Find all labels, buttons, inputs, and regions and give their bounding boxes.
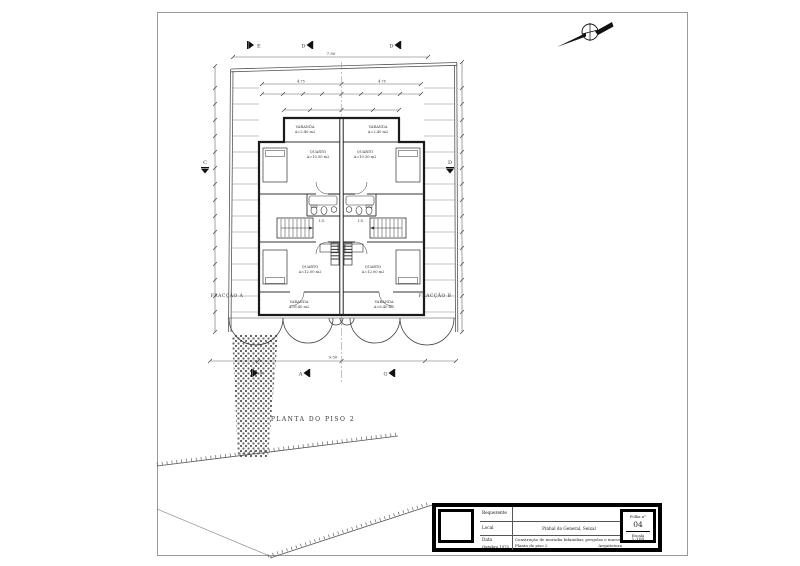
room-label-varanda-a: VARANDA <box>289 300 309 304</box>
project-description: Construção de moradia bifamiliar, pergol… <box>515 538 621 542</box>
data-value: Outubro 1975 <box>482 545 509 549</box>
room-label-varanda-top-a: VARANDA <box>295 125 315 129</box>
driveway-hatch <box>232 335 278 457</box>
fraction-a-label: FRACÇÃO A <box>211 291 244 299</box>
data-label: Data <box>482 538 492 542</box>
room-label-quarto2-a: QUARTO <box>302 265 318 269</box>
dim-top-overall: 7.50 <box>327 51 336 56</box>
section-marker-left: C <box>203 160 207 166</box>
svg-text:A=12.00 m2: A=12.00 m2 <box>298 270 322 274</box>
svg-text:A=12.00 m2: A=12.00 m2 <box>361 270 385 274</box>
room-label-quarto1-a: QUARTO <box>310 150 326 154</box>
svg-text:A=6.40 m2: A=6.40 m2 <box>288 305 309 309</box>
dim-top-right-half: 4.75 <box>378 80 386 84</box>
plan-title: PLANTA DO PISO 2 <box>271 416 355 423</box>
room-label-is-a: I.S. <box>319 219 325 223</box>
dim-bottom-overall: 9.50 <box>329 355 338 360</box>
section-marker-g: G <box>384 372 388 378</box>
room-label-quarto2-b: QUARTO <box>365 265 381 269</box>
discipline-label: Arquitetura <box>598 544 622 548</box>
dim-top-left-half: 4.75 <box>297 80 305 84</box>
local-value: Pinhal do General, Seixal <box>512 527 626 531</box>
title-block-table: Requerente Local Pinhal do General, Seix… <box>480 507 626 548</box>
local-label: Local <box>482 526 493 530</box>
room-label-quarto1-b: QUARTO <box>357 150 373 154</box>
room-label-varanda-b: VARANDA <box>374 300 394 304</box>
terrace-lines-right <box>424 88 456 312</box>
drawing-sheet: 7.50 4.75 4.75 9.50 <box>0 0 800 566</box>
north-arrow-icon <box>557 22 614 47</box>
folha-number: 04 <box>623 520 653 529</box>
svg-text:A=2.40 m2: A=2.40 m2 <box>367 130 388 134</box>
svg-text:A=10.50 m2: A=10.50 m2 <box>353 155 377 159</box>
sheet-description: Planta do piso 2 <box>515 544 548 548</box>
requerente-label: Requerente <box>482 511 507 515</box>
section-marker-right: D <box>448 160 452 166</box>
building-outline <box>259 118 424 315</box>
folha-label: Folha n° <box>623 514 653 519</box>
svg-text:A=6.40 m2: A=6.40 m2 <box>373 305 394 309</box>
road-upper <box>157 434 398 466</box>
terrace-lines-left <box>232 88 259 312</box>
title-block: Requerente Local Pinhal do General, Seix… <box>432 503 662 552</box>
svg-text:A=2.40 m2: A=2.40 m2 <box>294 130 315 134</box>
title-block-stamp-box <box>438 509 474 543</box>
section-marker-a: A <box>298 372 303 378</box>
room-label-is-b: I.S. <box>358 219 364 223</box>
section-marker-e: E <box>257 44 261 50</box>
floor-plan-drawing: 7.50 4.75 4.75 9.50 <box>0 0 800 566</box>
title-block-sheet-box: Folha n° 04 Escala 1:100 <box>620 509 656 543</box>
section-marker-top-mid: D <box>301 44 305 50</box>
section-marker-top-right: D <box>389 44 393 50</box>
road-lower <box>157 503 432 558</box>
room-label-varanda-top-b: VARANDA <box>368 125 388 129</box>
escala-value: 1:100 <box>623 538 653 543</box>
escala-label: Escala <box>623 533 653 538</box>
section-marker-f: F <box>260 372 264 378</box>
svg-text:A=10.50 m2: A=10.50 m2 <box>306 155 330 159</box>
